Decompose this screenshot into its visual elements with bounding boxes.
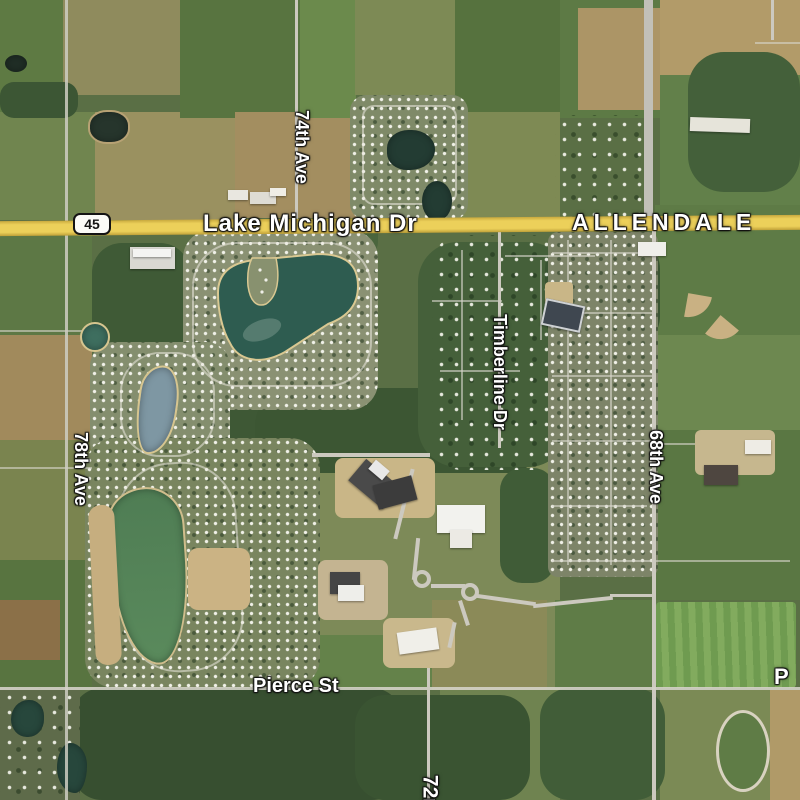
ball-diamond — [684, 293, 712, 321]
place-label-allendale: ALLENDALE — [572, 211, 756, 234]
road-label-pierce-st: Pierce St — [253, 676, 339, 696]
road-label-pierce-partial-right: P — [774, 666, 789, 688]
buildings — [0, 0, 800, 800]
race-track-oval — [716, 710, 770, 792]
large-dark-building — [541, 298, 586, 333]
route-45-shield: 45 — [73, 213, 111, 235]
route-45-shield-label: 45 — [84, 217, 100, 231]
road-label-lake-michigan-dr: Lake Michigan Dr — [203, 212, 418, 236]
satellite-map[interactable]: 45 Lake Michigan Dr ALLENDALE 74th Ave 7… — [0, 0, 800, 800]
road-label-timberline-dr: Timberline Dr — [491, 314, 509, 430]
road-label-74th-ave: 74th Ave — [293, 110, 311, 184]
ball-diamond — [705, 315, 739, 349]
road-label-68th-ave: 68th Ave — [647, 430, 665, 504]
road-label-72nd-ave-partial: 72n — [420, 775, 441, 800]
road-label-78th-ave: 78th Ave — [72, 432, 90, 506]
